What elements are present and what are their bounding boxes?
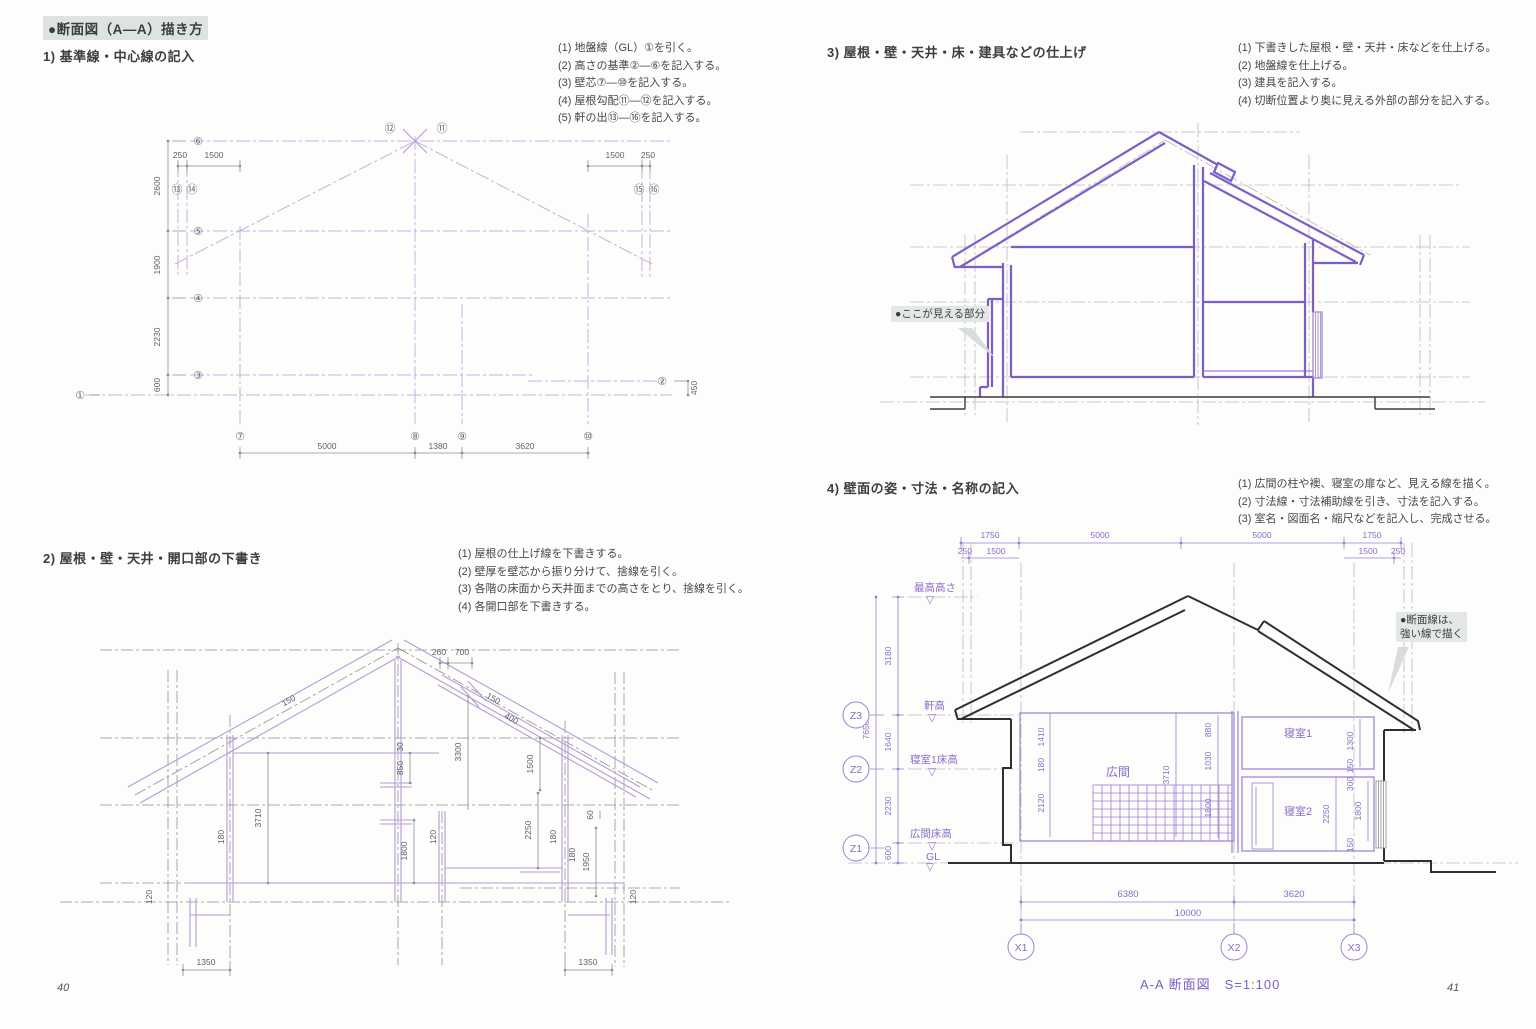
dim-5000-r: 5000 — [1253, 530, 1272, 540]
callout-visible-part: ●ここが見える部分 — [891, 306, 989, 322]
dim-1900: 1900 — [152, 255, 162, 274]
page-title: ●断面図（A—A）描き方 — [43, 16, 208, 40]
dim-150-bed1: 150 — [1345, 759, 1355, 773]
bottom-dimension-chain: 6380 3620 10000 X1 X2 X3 — [1008, 889, 1367, 960]
dim-250-right: 250 — [641, 150, 655, 160]
dim-1800: 1800 — [399, 841, 409, 860]
step1-item: (2) 高さの基準②—⑥を記入する。 — [558, 58, 726, 76]
callout-pointer — [958, 328, 995, 358]
room-label-hall: 広間 — [1106, 765, 1130, 779]
draft-lines-purple — [128, 640, 658, 955]
step2-item: (2) 壁厚を壁芯から振り分けて、捨線を引く。 — [458, 564, 749, 582]
step1-item: (3) 壁芯⑦—⑩を記入する。 — [558, 75, 726, 93]
dim-300: 300 — [1345, 777, 1355, 791]
dim-1750-r: 1750 — [1363, 530, 1382, 540]
wall-bubble-8: ⑧ — [410, 431, 420, 443]
dim-2250: 2250 — [523, 820, 533, 839]
guide-lines — [848, 543, 1518, 934]
dim-2600: 2600 — [152, 176, 162, 195]
step1-heading: 1) 基準線・中心線の記入 — [43, 46, 195, 65]
step3-heading: 3) 屋根・壁・天井・床・建具などの仕上げ — [827, 42, 1087, 61]
dim-250-left: 250 — [173, 150, 187, 160]
room-label-bed2: 寝室2 — [1284, 804, 1312, 818]
dim-1750-l: 1750 — [981, 530, 1000, 540]
dim-150-bed2: 150 — [1345, 838, 1355, 852]
grid-bubble-z2-label: Z2 — [850, 764, 862, 776]
dim-250-l: 250 — [958, 546, 972, 556]
dim-850: 850 — [395, 761, 405, 775]
dim-2120: 2120 — [1036, 793, 1046, 812]
dim-6380: 6380 — [1117, 889, 1138, 900]
step4-heading: 4) 壁面の姿・寸法・名称の記入 — [827, 478, 1019, 497]
dim-1800-bed2: 1800 — [1353, 801, 1363, 820]
centerlines — [85, 129, 672, 424]
step4-instructions: (1) 広間の柱や襖、寝室の扉など、見える線を描く。 (2) 寸法線・寸法補助線… — [1238, 476, 1497, 529]
dim-3180: 3180 — [883, 646, 893, 665]
dim-700: 700 — [455, 647, 469, 657]
dim-30: 30 — [395, 742, 405, 752]
eave-bubble-16: ⑯ — [649, 183, 660, 196]
level-mark: ▽ — [926, 594, 935, 606]
dim-600: 600 — [152, 378, 162, 392]
step3-instructions: (1) 下書きした屋根・壁・天井・床などを仕上げる。 (2) 地盤線を仕上げる。… — [1238, 40, 1497, 110]
section-outline-purple — [952, 132, 1364, 397]
callout-section-line: ●断面線は、 強い線で描く — [1396, 612, 1467, 642]
level-label-max: 最高高さ — [914, 581, 956, 594]
level-mark: ▽ — [928, 766, 937, 778]
step4-item: (2) 寸法線・寸法補助線を引き、寸法を記入する。 — [1238, 494, 1497, 512]
step3-item: (3) 建具を記入する。 — [1238, 75, 1497, 93]
level-mark: ▽ — [928, 712, 937, 724]
dim-180-rightwall: 180 — [548, 830, 558, 844]
dim-1500-r: 1500 — [1359, 546, 1378, 556]
top-dimension-chain: 1750 5000 5000 1750 250 1500 1500 250 — [958, 530, 1405, 564]
dim-3300: 3300 — [453, 742, 463, 761]
level-label-eave: 軒高 — [924, 699, 945, 712]
dim-3620: 3620 — [1283, 889, 1304, 900]
dim-5000-l: 5000 — [1091, 530, 1110, 540]
level-bubble-4: ④ — [193, 293, 203, 305]
guide-centerlines — [880, 123, 1485, 425]
dim-880: 880 — [1203, 723, 1213, 737]
dim-3710: 3710 — [253, 808, 263, 827]
wall-bubble-9: ⑨ — [457, 431, 467, 443]
grid-bubble-x2-label: X2 — [1228, 942, 1241, 954]
level-bubble-1: ① — [75, 390, 85, 402]
wall-bubble-7: ⑦ — [235, 431, 245, 443]
dim-1500-left: 1500 — [205, 150, 224, 160]
interior-purple: 広間 寝室1 寝室2 1410 180 2120 3710 880 1030 1… — [1020, 711, 1374, 853]
draft-dimensions: 260 700 3710 850 30 3300 1800 1500 2250 … — [144, 647, 638, 976]
dim-slope-right1: 150 — [485, 691, 502, 707]
dim-1350-left: 1350 — [197, 957, 216, 967]
book-spread: ●断面図（A—A）描き方 1) 基準線・中心線の記入 (1) 地盤線（GL）①を… — [0, 0, 1536, 1029]
eave-bubble-13: ⑬ — [172, 183, 183, 196]
wall-bubble-10: ⑩ — [583, 431, 593, 443]
grid-bubble-z3-label: Z3 — [850, 710, 862, 722]
dim-120-rightedge: 120 — [628, 890, 638, 904]
base-centerlines — [60, 643, 732, 967]
page-number-right: 41 — [1447, 982, 1459, 994]
step4-item: (1) 広間の柱や襖、寝室の扉など、見える線を描く。 — [1238, 476, 1497, 494]
figure-caption: A-A 断面図 S=1:100 — [1140, 974, 1280, 993]
grid-bubble-x3-label: X3 — [1348, 942, 1361, 954]
dim-1500-right: 1500 — [606, 150, 625, 160]
step2-instructions: (1) 屋根の仕上げ線を下書きする。 (2) 壁厚を壁芯から振り分けて、捨線を引… — [458, 546, 749, 616]
step3-item: (2) 地盤線を仕上げる。 — [1238, 58, 1497, 76]
left-dimension-chain: 3180 1640 2230 600 7650 最高高さ ▽ 軒高 ▽ 寝室1床… — [843, 581, 958, 873]
level-mark: ▽ — [926, 861, 935, 873]
dim-10000: 10000 — [1175, 908, 1201, 919]
grid-bubble-x1-label: X1 — [1015, 942, 1028, 954]
dim-180-leftwall: 180 — [216, 830, 226, 844]
step3-item: (1) 下書きした屋根・壁・天井・床などを仕上げる。 — [1238, 40, 1497, 58]
dim-250-r: 250 — [1391, 546, 1405, 556]
slope-bubble-11: ⑪ — [437, 122, 448, 135]
level-label-hallfloor: 広間床高 — [910, 827, 952, 840]
step2-item: (1) 屋根の仕上げ線を下書きする。 — [458, 546, 749, 564]
level-bubble-5: ⑤ — [193, 226, 203, 238]
slope-bubble-12: ⑫ — [385, 122, 396, 135]
step2-item: (3) 各階の床面から天井面までの高さをとり、捨線を引く。 — [458, 581, 749, 599]
dim-1500: 1500 — [525, 754, 535, 773]
dim-3620: 3620 — [516, 441, 535, 451]
dim-1300: 1300 — [1345, 731, 1355, 750]
dim-1500-l: 1500 — [987, 546, 1006, 556]
level-label-bed1floor: 寝室1床高 — [910, 753, 958, 766]
level-bubble-2: ② — [657, 376, 667, 388]
dim-1030: 1030 — [1203, 751, 1213, 770]
level-bubble-3: ③ — [193, 370, 203, 382]
dim-260: 260 — [432, 647, 446, 657]
level-bubble-6: ⑥ — [193, 136, 203, 148]
dim-2230: 2230 — [883, 796, 893, 815]
dim-1380: 1380 — [429, 441, 448, 451]
callout-section-line-1: ●断面線は、 — [1400, 613, 1463, 627]
dim-120-centerwall: 120 — [428, 830, 438, 844]
dim-2230: 2230 — [152, 327, 162, 346]
dim-1950: 1950 — [581, 852, 591, 871]
step2-item: (4) 各開口部を下書きする。 — [458, 599, 749, 617]
dim-1350-right: 1350 — [579, 957, 598, 967]
dim-1410: 1410 — [1036, 727, 1046, 746]
step2-heading: 2) 屋根・壁・天井・開口部の下書き — [43, 548, 262, 567]
dim-600: 600 — [883, 846, 893, 860]
dimension-labels: 2600 1900 2230 600 450 250 1500 1500 250… — [152, 150, 699, 451]
figure-step2-draft: 260 700 3710 850 30 3300 1800 1500 2250 … — [40, 615, 740, 1015]
dim-1800: 1800 — [1203, 798, 1213, 817]
dim-2250: 2250 — [1321, 804, 1331, 823]
callout-pointer-section — [1388, 647, 1409, 693]
page-number-left: 40 — [57, 982, 69, 994]
dim-slope-left: 150 — [280, 692, 297, 708]
grid-bubble-z1-label: Z1 — [850, 843, 862, 855]
dim-180: 180 — [1036, 758, 1046, 772]
figure-step1-centerlines: 2600 1900 2230 600 450 250 1500 1500 250… — [50, 108, 730, 480]
figure-step4-final: 1750 5000 5000 1750 250 1500 1500 250 31… — [828, 523, 1528, 988]
dim-5000: 5000 — [318, 441, 337, 451]
ground-line — [930, 397, 1435, 409]
callout-section-line-2: 強い線で描く — [1400, 627, 1463, 641]
eave-bubble-15: ⑮ — [634, 183, 645, 196]
step1-item: (1) 地盤線（GL）①を引く。 — [558, 40, 726, 58]
dim-1640: 1640 — [883, 732, 893, 751]
dim-120-leftedge: 120 — [144, 890, 154, 904]
dim-450: 450 — [689, 381, 699, 395]
dim-60: 60 — [585, 810, 595, 820]
step3-item: (4) 切断位置より奥に見える外部の部分を記入する。 — [1238, 93, 1497, 111]
dim-3710: 3710 — [1161, 765, 1171, 784]
figure-step3-finished — [870, 115, 1490, 435]
eave-bubble-14: ⑭ — [187, 183, 198, 196]
room-label-bed1: 寝室1 — [1284, 726, 1312, 740]
dim-180-rightwall2: 180 — [567, 848, 577, 862]
